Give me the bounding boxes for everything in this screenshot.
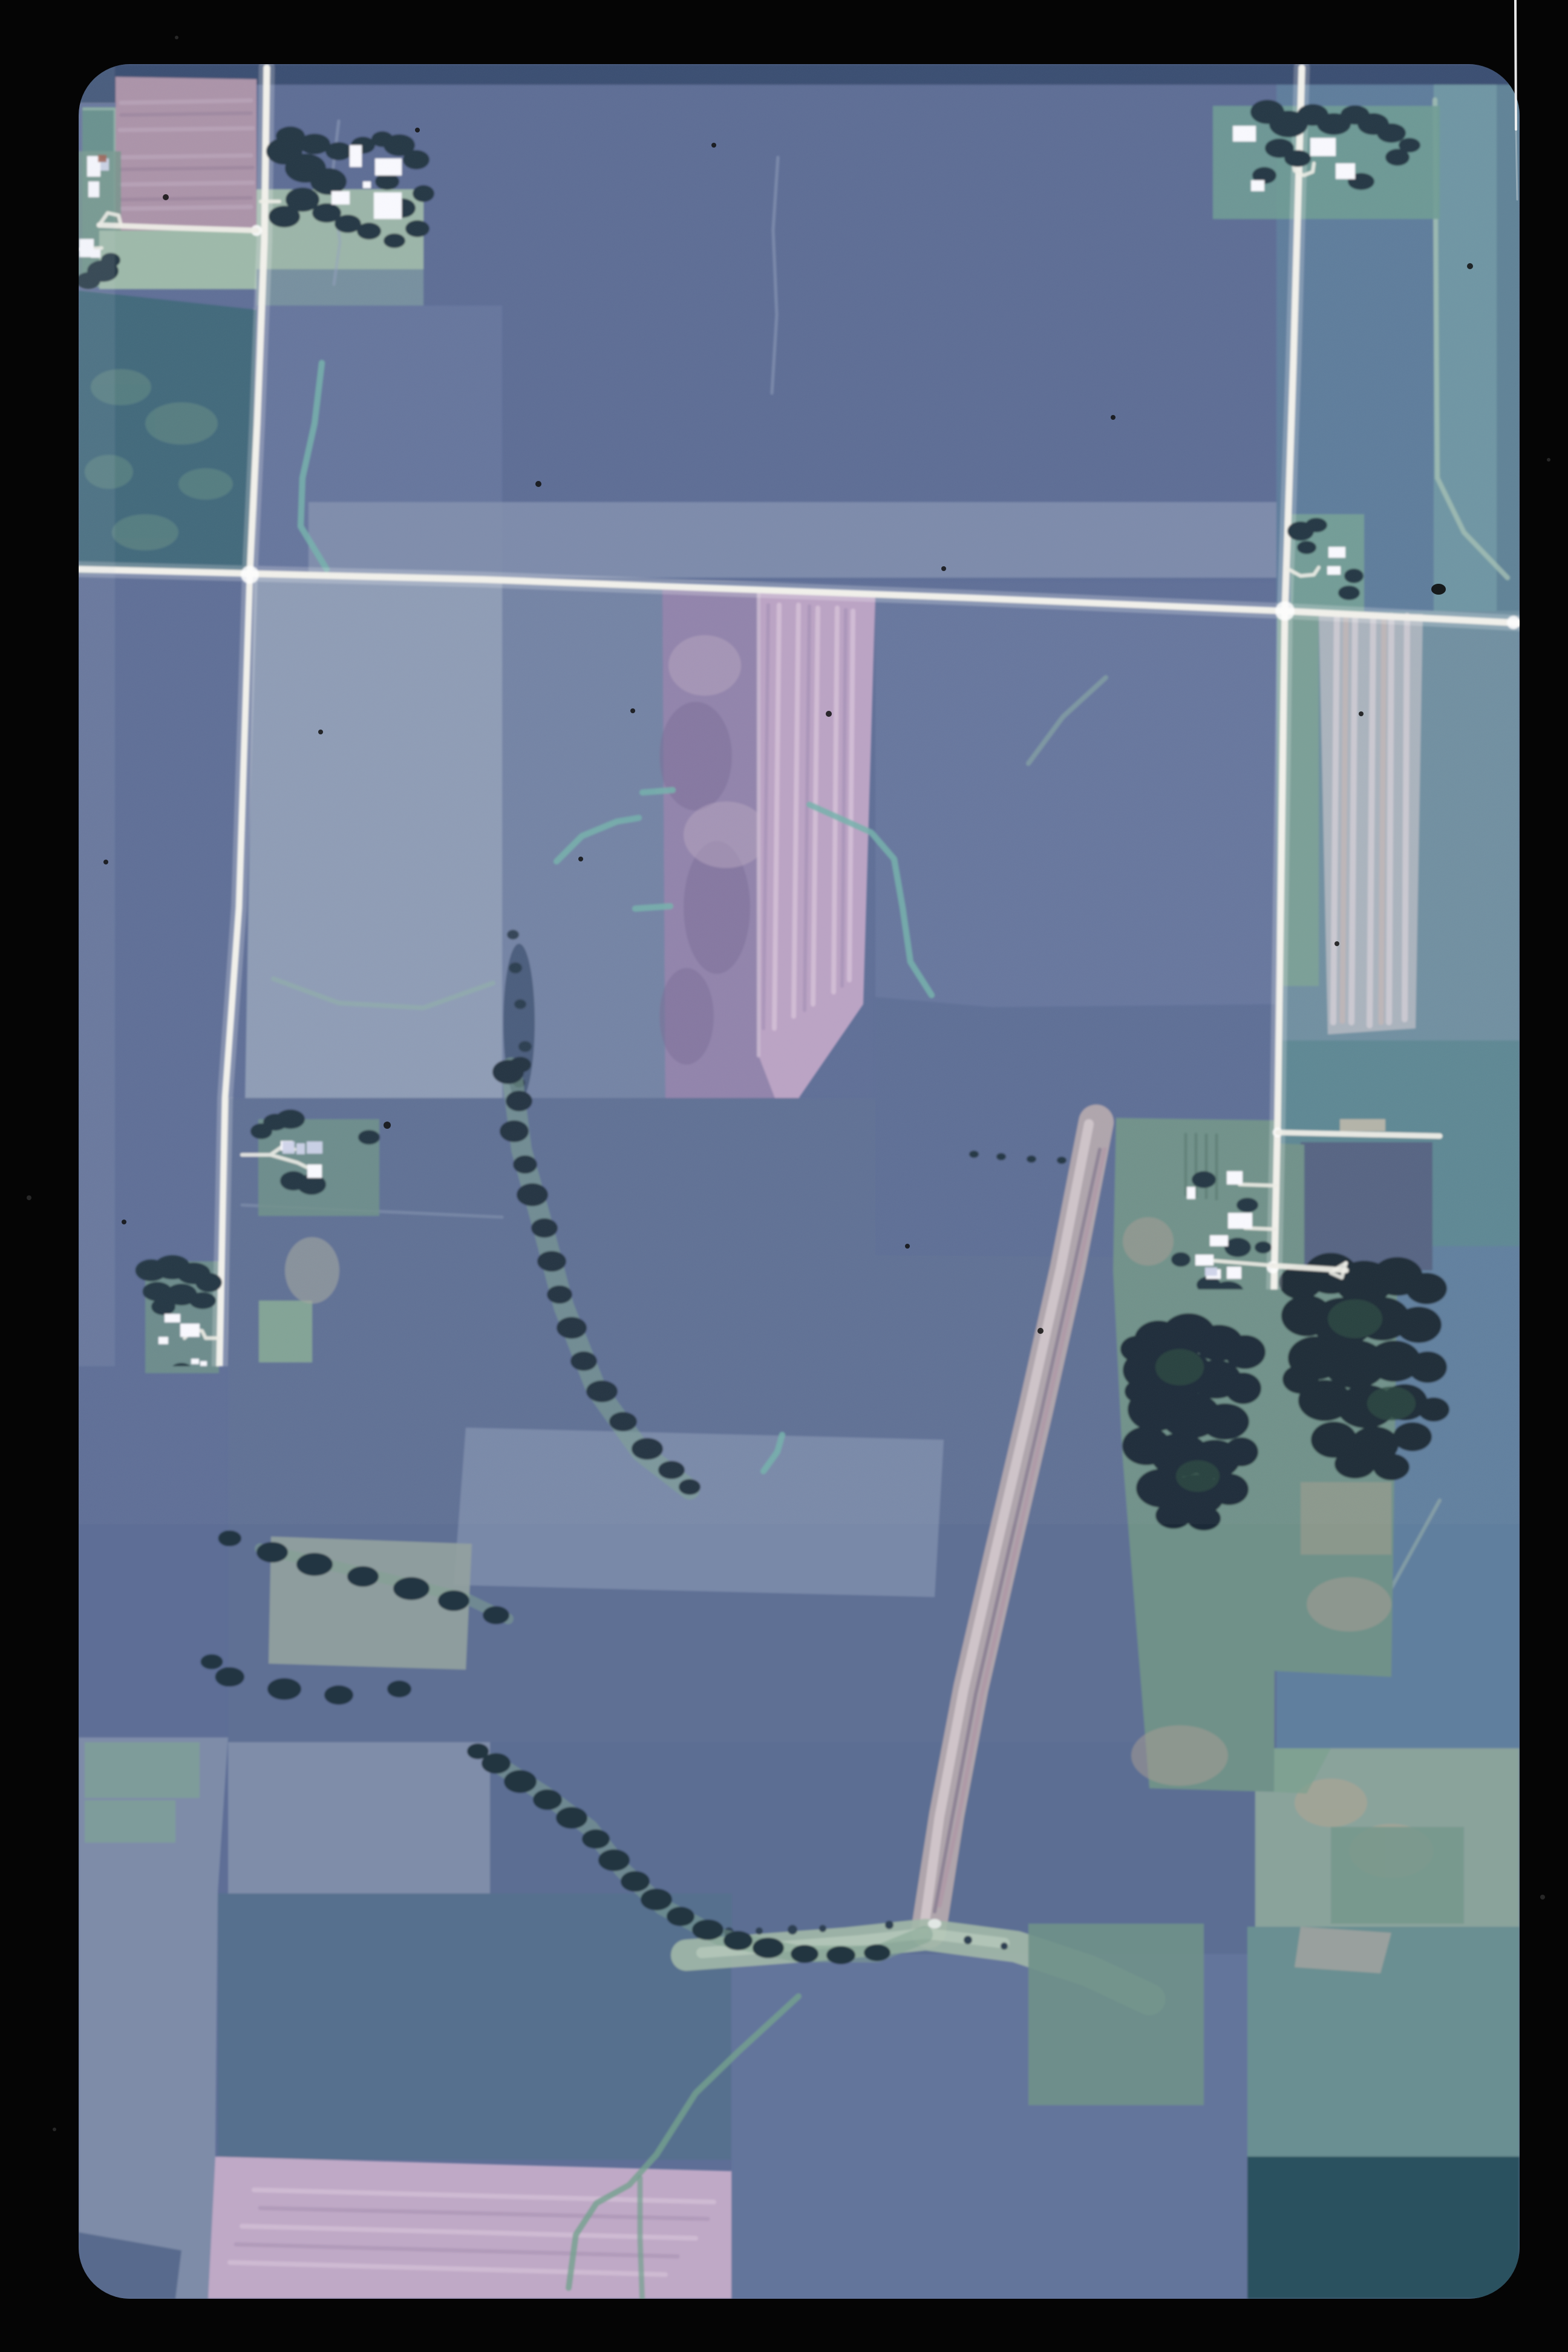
film-grain	[79, 64, 1520, 2299]
mount-scratch-bright	[1515, 0, 1516, 129]
mount-scratch-faint	[1516, 129, 1517, 200]
slide-mount	[0, 0, 1568, 2352]
photo-area	[76, 64, 1529, 2306]
aerial-photograph	[0, 0, 1568, 2352]
bottom-fade	[79, 2202, 1520, 2299]
dust-blob-large	[1431, 584, 1446, 595]
